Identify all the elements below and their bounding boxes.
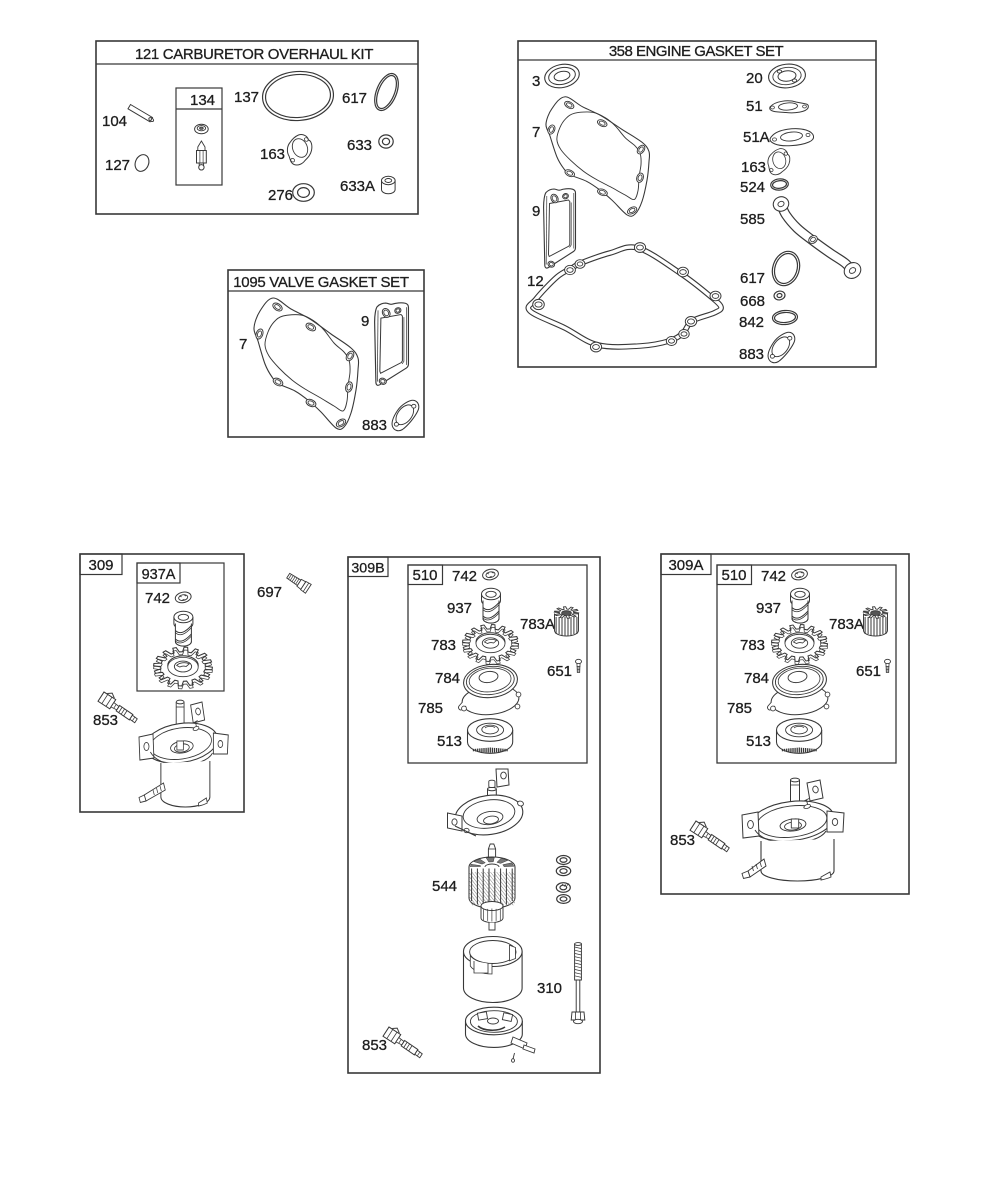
svg-text:742: 742 [145, 590, 170, 607]
svg-text:104: 104 [102, 113, 127, 130]
svg-text:3: 3 [532, 73, 540, 90]
svg-text:309B: 309B [351, 561, 384, 577]
svg-text:883: 883 [739, 346, 764, 363]
svg-text:163: 163 [741, 159, 766, 176]
svg-text:617: 617 [342, 90, 367, 107]
svg-text:937A: 937A [142, 567, 176, 583]
svg-text:127: 127 [105, 157, 130, 174]
svg-text:9: 9 [532, 203, 540, 220]
svg-text:633A: 633A [340, 178, 375, 195]
svg-text:163: 163 [260, 146, 285, 163]
svg-text:134: 134 [190, 92, 215, 109]
svg-text:1095 VALVE GASKET SET: 1095 VALVE GASKET SET [233, 274, 409, 291]
svg-text:842: 842 [739, 314, 764, 331]
svg-text:358 ENGINE GASKET SET: 358 ENGINE GASKET SET [609, 43, 784, 60]
svg-text:9: 9 [361, 313, 369, 330]
svg-text:276: 276 [268, 187, 293, 204]
svg-text:853: 853 [93, 712, 118, 729]
svg-text:883: 883 [362, 417, 387, 434]
svg-text:585: 585 [740, 211, 765, 228]
svg-text:137: 137 [234, 89, 259, 106]
svg-text:20: 20 [746, 70, 763, 87]
svg-text:7: 7 [239, 336, 247, 353]
svg-text:853: 853 [670, 832, 695, 849]
svg-text:309: 309 [88, 557, 113, 574]
svg-text:697: 697 [257, 584, 282, 601]
svg-text:668: 668 [740, 293, 765, 310]
svg-text:7: 7 [532, 124, 540, 141]
svg-text:524: 524 [740, 179, 765, 196]
svg-text:51A: 51A [743, 129, 770, 146]
svg-text:121 CARBURETOR OVERHAUL KIT: 121 CARBURETOR OVERHAUL KIT [135, 46, 373, 63]
svg-text:853: 853 [362, 1037, 387, 1054]
svg-text:633: 633 [347, 137, 372, 154]
svg-text:310: 310 [537, 980, 562, 997]
svg-text:617: 617 [740, 270, 765, 287]
svg-text:309A: 309A [668, 557, 703, 574]
svg-text:544: 544 [432, 878, 457, 895]
svg-text:12: 12 [527, 273, 544, 290]
svg-text:51: 51 [746, 98, 763, 115]
